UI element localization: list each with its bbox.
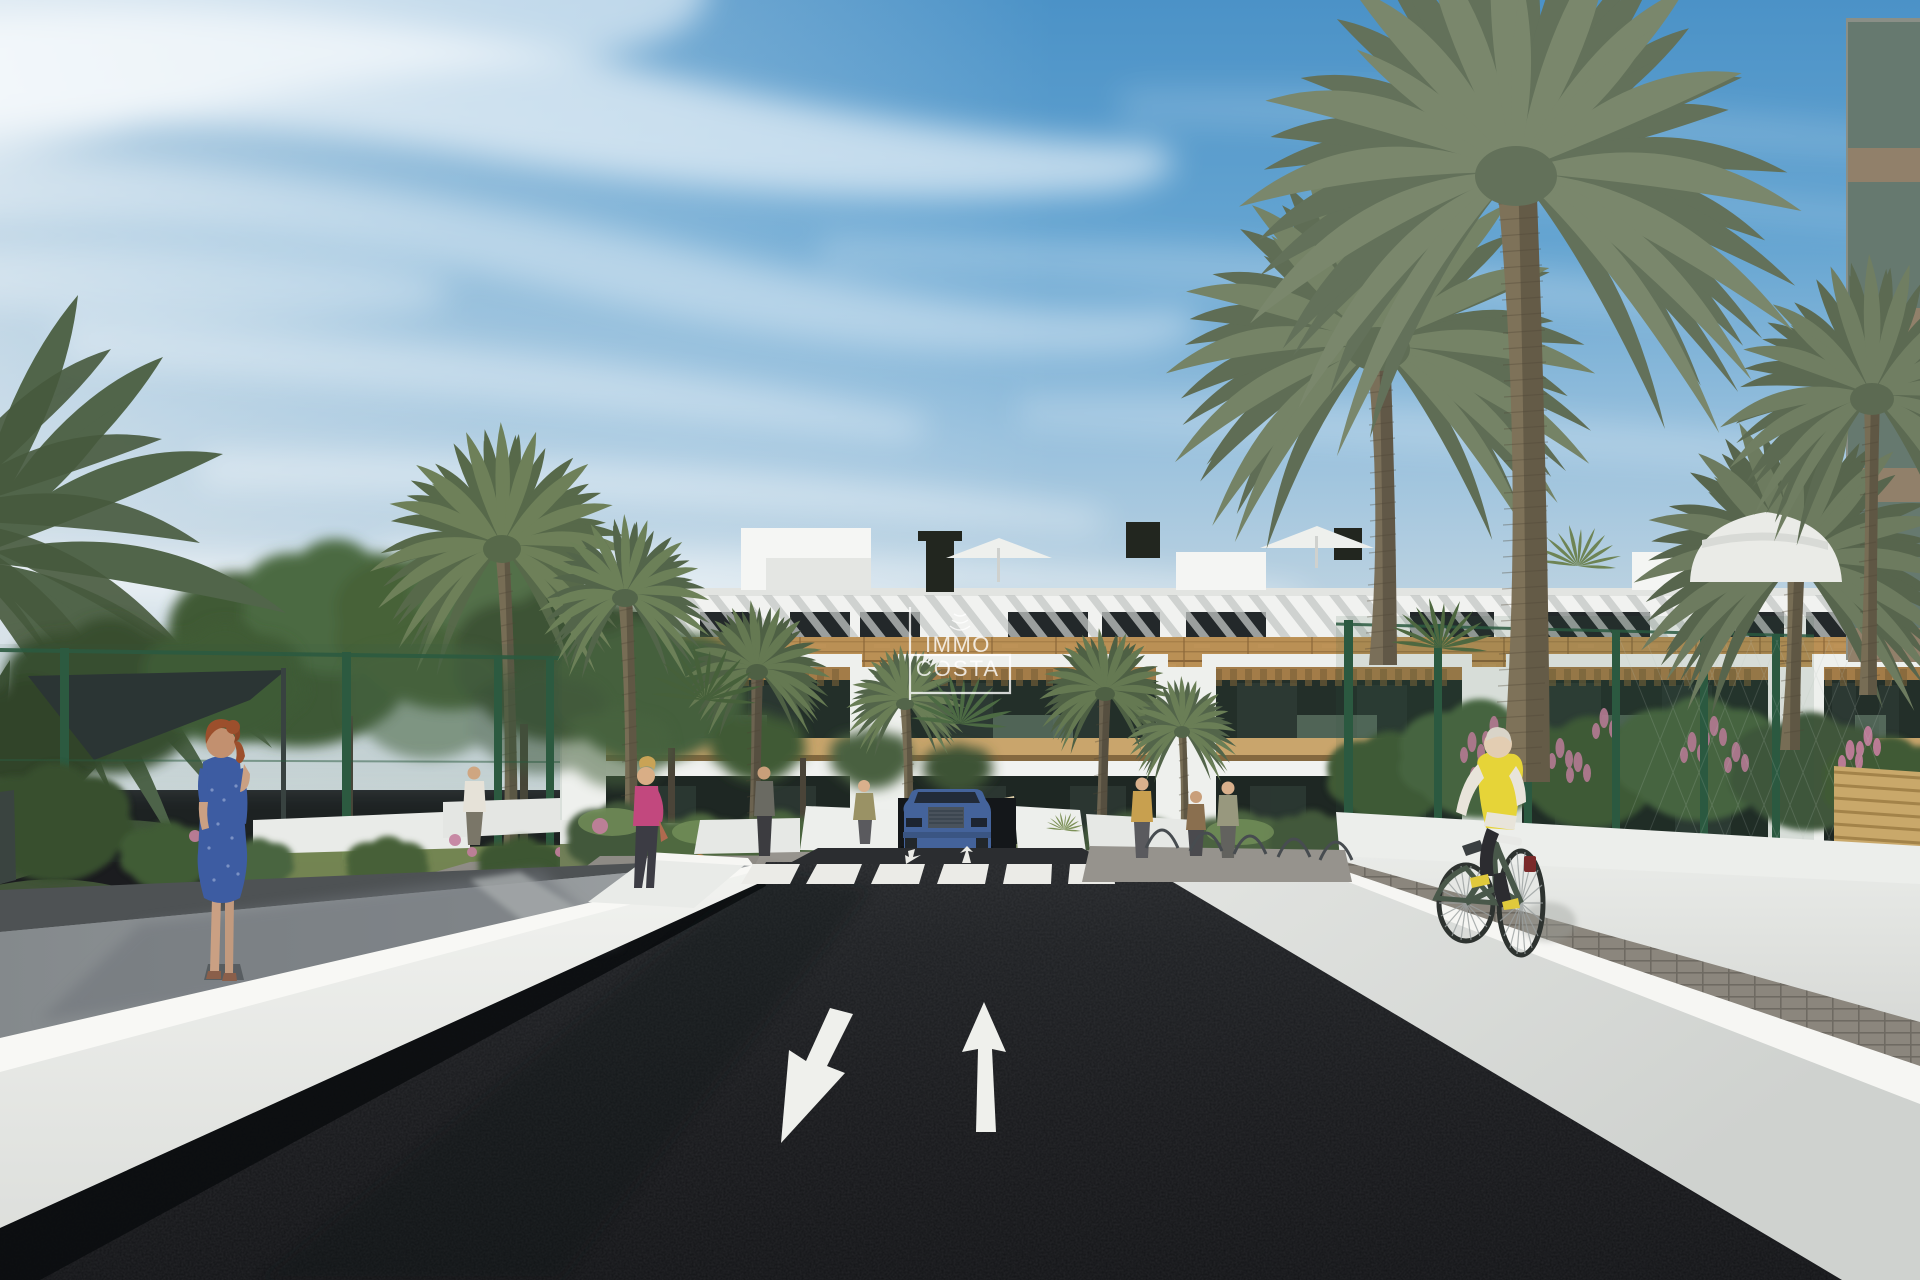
svg-text:COSTA: COSTA (916, 656, 1000, 681)
svg-text:IMMO: IMMO (925, 632, 991, 657)
